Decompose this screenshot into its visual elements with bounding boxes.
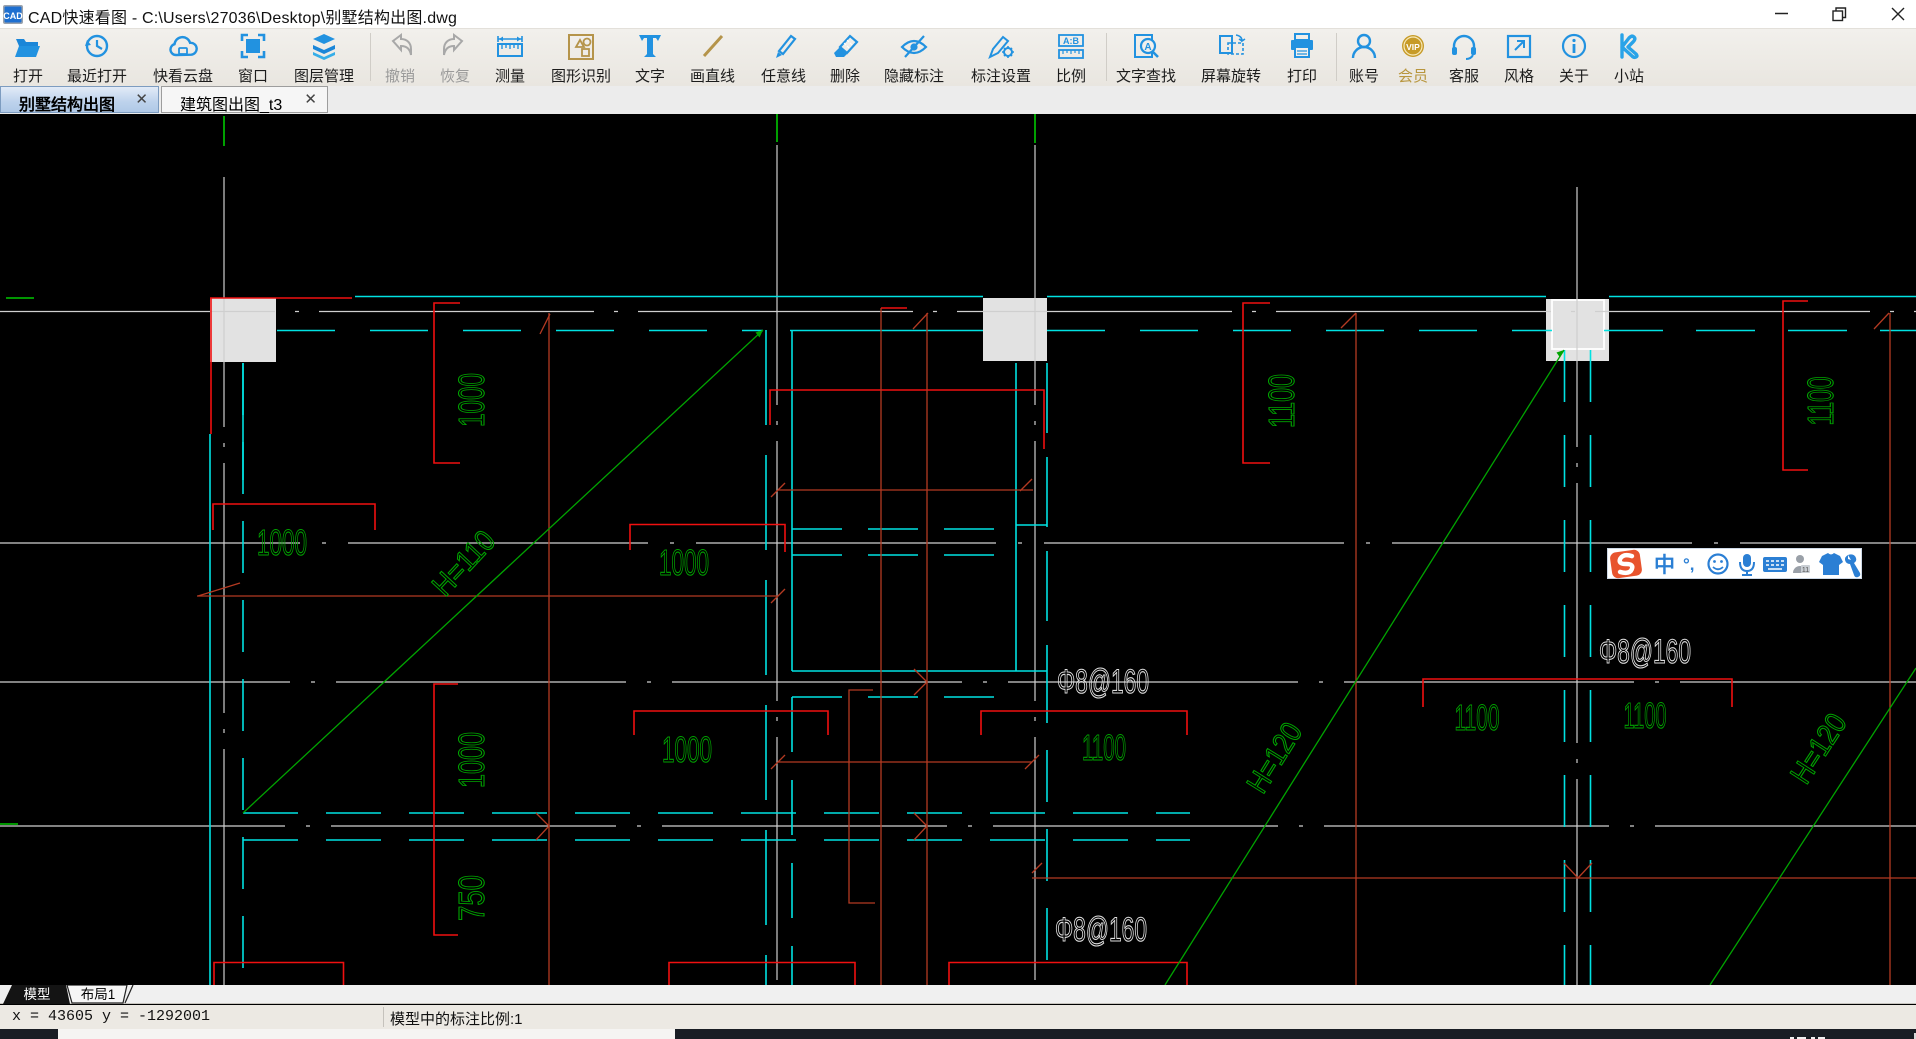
svg-text:H=110: H=110 bbox=[426, 524, 502, 602]
svg-text:Φ8@160: Φ8@160 bbox=[1057, 663, 1149, 701]
svg-text:中: 中 bbox=[1654, 554, 1675, 577]
svg-text:A: A bbox=[1144, 42, 1151, 53]
svg-text:1100: 1100 bbox=[1624, 695, 1667, 736]
svg-text:Φ8@160: Φ8@160 bbox=[1055, 911, 1147, 949]
svg-text:750: 750 bbox=[451, 875, 492, 921]
svg-text:°,: °, bbox=[1683, 555, 1695, 574]
svg-text:1000: 1000 bbox=[257, 522, 307, 563]
svg-text:VIP: VIP bbox=[1406, 42, 1420, 52]
svg-text:CAD: CAD bbox=[3, 11, 23, 21]
svg-text:1000: 1000 bbox=[451, 732, 492, 788]
svg-text:布局1: 布局1 bbox=[81, 987, 116, 1002]
svg-text:H=120: H=120 bbox=[1241, 717, 1309, 799]
svg-text:11: 11 bbox=[1802, 567, 1809, 574]
svg-text:Φ8@160: Φ8@160 bbox=[1599, 633, 1691, 671]
svg-text:1000: 1000 bbox=[662, 729, 712, 770]
svg-text:A:B: A:B bbox=[1063, 36, 1079, 46]
svg-text:1100: 1100 bbox=[1455, 697, 1500, 738]
svg-text:1000: 1000 bbox=[659, 542, 709, 583]
svg-text:模型: 模型 bbox=[24, 987, 51, 1002]
svg-text:H=120: H=120 bbox=[1784, 708, 1853, 790]
svg-text:1000: 1000 bbox=[451, 373, 492, 427]
svg-text:1100: 1100 bbox=[1261, 374, 1302, 428]
svg-text:1100: 1100 bbox=[1800, 377, 1841, 426]
svg-text:1100: 1100 bbox=[1082, 727, 1126, 768]
